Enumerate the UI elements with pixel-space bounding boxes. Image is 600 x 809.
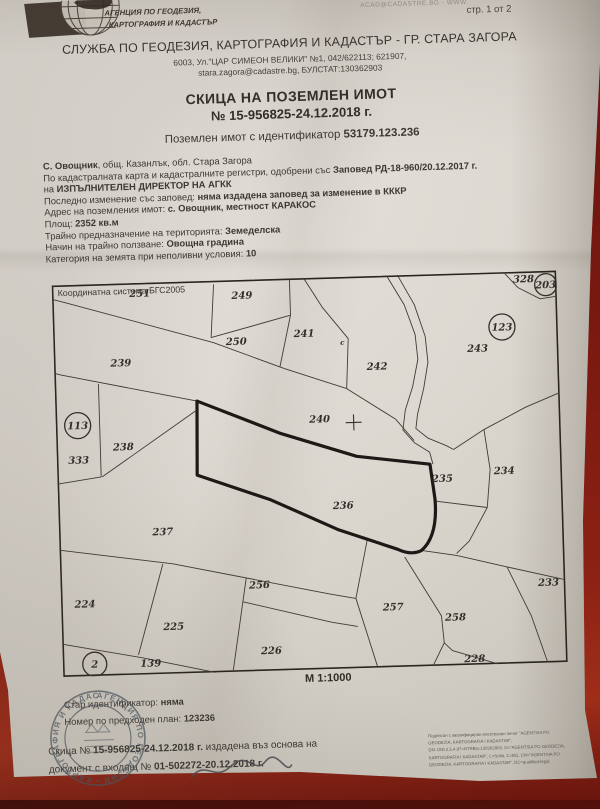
parcel-label: 235 bbox=[431, 474, 453, 486]
watermark-email: ACAD@CADASTRE.BG - WWW. bbox=[360, 0, 469, 9]
logo-text-line1: АГЕНЦИЯ ПО ГЕОДЕЗИЯ, bbox=[103, 6, 201, 18]
parcel-label: 238 bbox=[112, 442, 134, 454]
page-indicator: стр. 1 от 2 bbox=[466, 4, 511, 16]
logo-text-line2: КАРТОГРАФИЯ И КАДАСТЪР bbox=[109, 17, 219, 29]
parcel-label: 237 bbox=[151, 527, 173, 539]
parcel-label: 242 bbox=[365, 361, 387, 373]
parcel-label: 243 bbox=[466, 343, 488, 355]
parcel-label: 228 bbox=[463, 654, 485, 666]
parcel-label: 250 bbox=[225, 337, 247, 349]
parcel-label: 241 bbox=[292, 329, 314, 341]
parcel-label: 225 bbox=[162, 622, 184, 634]
property-details: С. Овощник, общ. Казанлък, обл. Стара За… bbox=[43, 145, 566, 265]
circled-parcel-label: 113 bbox=[67, 421, 88, 433]
parcel-label: 236 bbox=[332, 500, 354, 512]
parcel-label: 328 bbox=[513, 274, 534, 286]
map-scale: М 1:1000 bbox=[278, 671, 378, 686]
parcel-label: 234 bbox=[493, 466, 515, 478]
parcel-label: 256 bbox=[248, 580, 270, 592]
parcel-label: 239 bbox=[109, 358, 131, 370]
round-stamp-icon: АГЕНЦИЯ ПО ГЕОДЕЗИЯ • КАРТОГРАФИЯ И КАДА… bbox=[38, 678, 157, 797]
circled-parcel-label: 2 bbox=[90, 660, 98, 671]
document-photo: АГЕНЦИЯ ПО ГЕОДЕЗИЯ, КАРТОГРАФИЯ И КАДАС… bbox=[0, 0, 600, 800]
parcel-label: 224 bbox=[73, 599, 95, 611]
circled-parcel-label: 203 bbox=[534, 280, 556, 292]
signature-icon bbox=[185, 752, 296, 785]
parcel-labels: 251249250241c242243328239333238240237236… bbox=[61, 273, 568, 677]
parcel-label: c bbox=[340, 338, 345, 347]
survey-cross-icon bbox=[345, 414, 361, 430]
parcel-label: 233 bbox=[537, 577, 559, 589]
parcel-label: 240 bbox=[308, 414, 330, 426]
sheet-content: АГЕНЦИЯ ПО ГЕОДЕЗИЯ, КАРТОГРАФИЯ И КАДАС… bbox=[0, 0, 600, 809]
cadastral-map: 251249250241c242243328239333238240237236… bbox=[51, 270, 567, 677]
parcel-label: 226 bbox=[260, 646, 282, 658]
parcel-label: 258 bbox=[444, 612, 466, 624]
parcel-label: 257 bbox=[382, 602, 404, 614]
parcel-label: 249 bbox=[230, 290, 252, 302]
circled-parcel-label: 123 bbox=[491, 322, 512, 334]
signature-block: Подписан с квалифициран електронен печат… bbox=[428, 727, 600, 768]
parcel-label: 139 bbox=[140, 658, 161, 670]
parcel-label: 333 bbox=[68, 455, 89, 467]
